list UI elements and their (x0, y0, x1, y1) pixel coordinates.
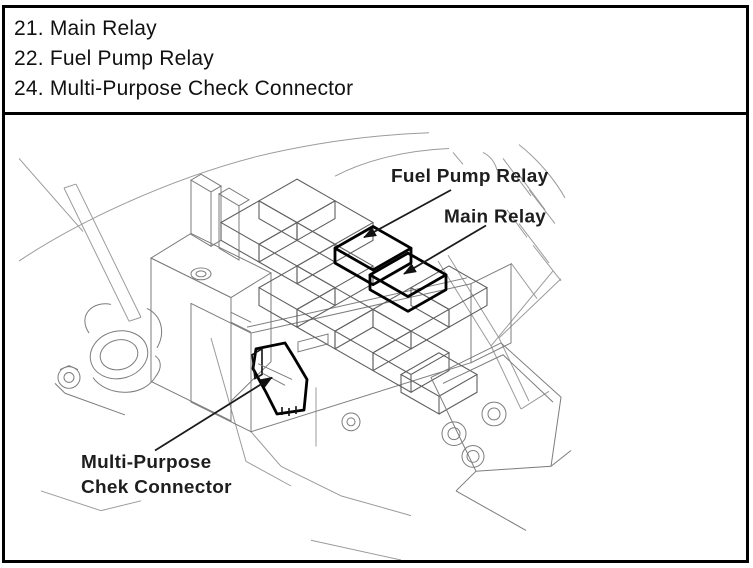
main-relay-arrow (404, 226, 486, 274)
fuse-box-body-drawing (191, 264, 511, 432)
diagram-area: Fuel Pump Relay Main Relay Multi-Purpose… (5, 115, 746, 560)
main-relay-label: Main Relay (444, 206, 546, 227)
check-connector-arrow (155, 377, 272, 450)
parts-list-item: 21. Main Relay (14, 14, 746, 44)
check-connector-label-line1: Multi-Purpose (81, 451, 211, 472)
highlight-main-relay (370, 253, 446, 311)
check-connector-label-line2: Chek Connector (81, 476, 232, 497)
bracket-bolts-drawing (431, 343, 571, 530)
parts-list-item: 24. Multi-Purpose Check Connector (14, 74, 746, 104)
highlight-check-connector (252, 343, 307, 416)
page-frame: 21. Main Relay 22. Fuel Pump Relay 24. M… (2, 5, 749, 563)
engine-bay-diagram: Fuel Pump Relay Main Relay Multi-Purpose… (5, 115, 746, 560)
fuel-pump-relay-arrow (364, 190, 451, 237)
fuel-pump-relay-label: Fuel Pump Relay (391, 165, 549, 186)
left-block-drawing (151, 174, 271, 421)
manual-page: 21. Main Relay 22. Fuel Pump Relay 24. M… (0, 0, 753, 568)
hose-clamp-drawing (55, 304, 162, 415)
parts-list-item: 22. Fuel Pump Relay (14, 44, 746, 74)
parts-list: 21. Main Relay 22. Fuel Pump Relay 24. M… (5, 8, 746, 115)
